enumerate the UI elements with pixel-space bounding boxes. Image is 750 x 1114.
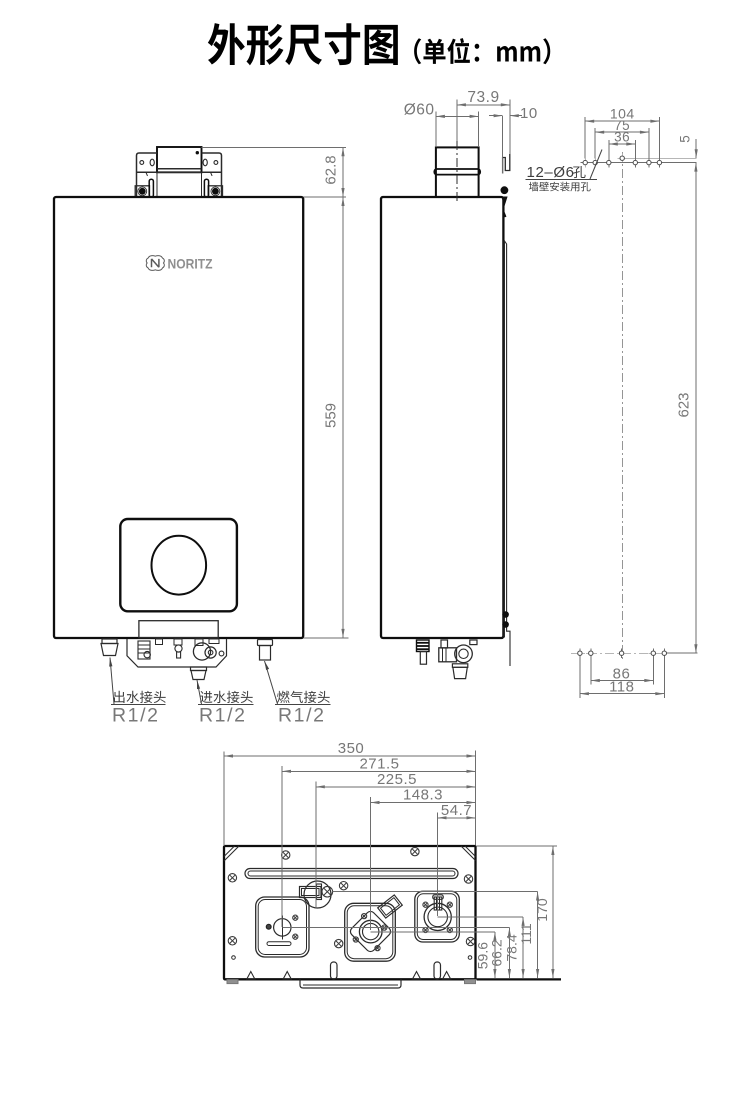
svg-text:NORITZ: NORITZ [168,257,213,272]
svg-text:10: 10 [520,105,538,122]
svg-text:12–Ø6: 12–Ø6 [527,164,575,181]
svg-text:R1/2: R1/2 [278,705,326,727]
svg-text:Ø60: Ø60 [404,102,435,119]
svg-text:36: 36 [614,130,630,145]
svg-text:66.2: 66.2 [489,939,505,966]
svg-text:118: 118 [609,679,634,696]
svg-text:73.9: 73.9 [467,89,499,106]
svg-text:148.3: 148.3 [403,787,443,804]
svg-text:62.8: 62.8 [323,155,340,184]
svg-text:R1/2: R1/2 [199,705,247,727]
svg-text:271.5: 271.5 [359,756,399,773]
svg-text:559: 559 [323,403,340,428]
svg-text:225.5: 225.5 [377,771,417,788]
svg-text:623: 623 [676,392,693,417]
svg-text:R1/2: R1/2 [112,705,160,727]
svg-text:54.7: 54.7 [441,802,472,819]
svg-text:5: 5 [677,135,692,143]
svg-text:111: 111 [518,923,534,944]
svg-text:170: 170 [534,898,550,922]
